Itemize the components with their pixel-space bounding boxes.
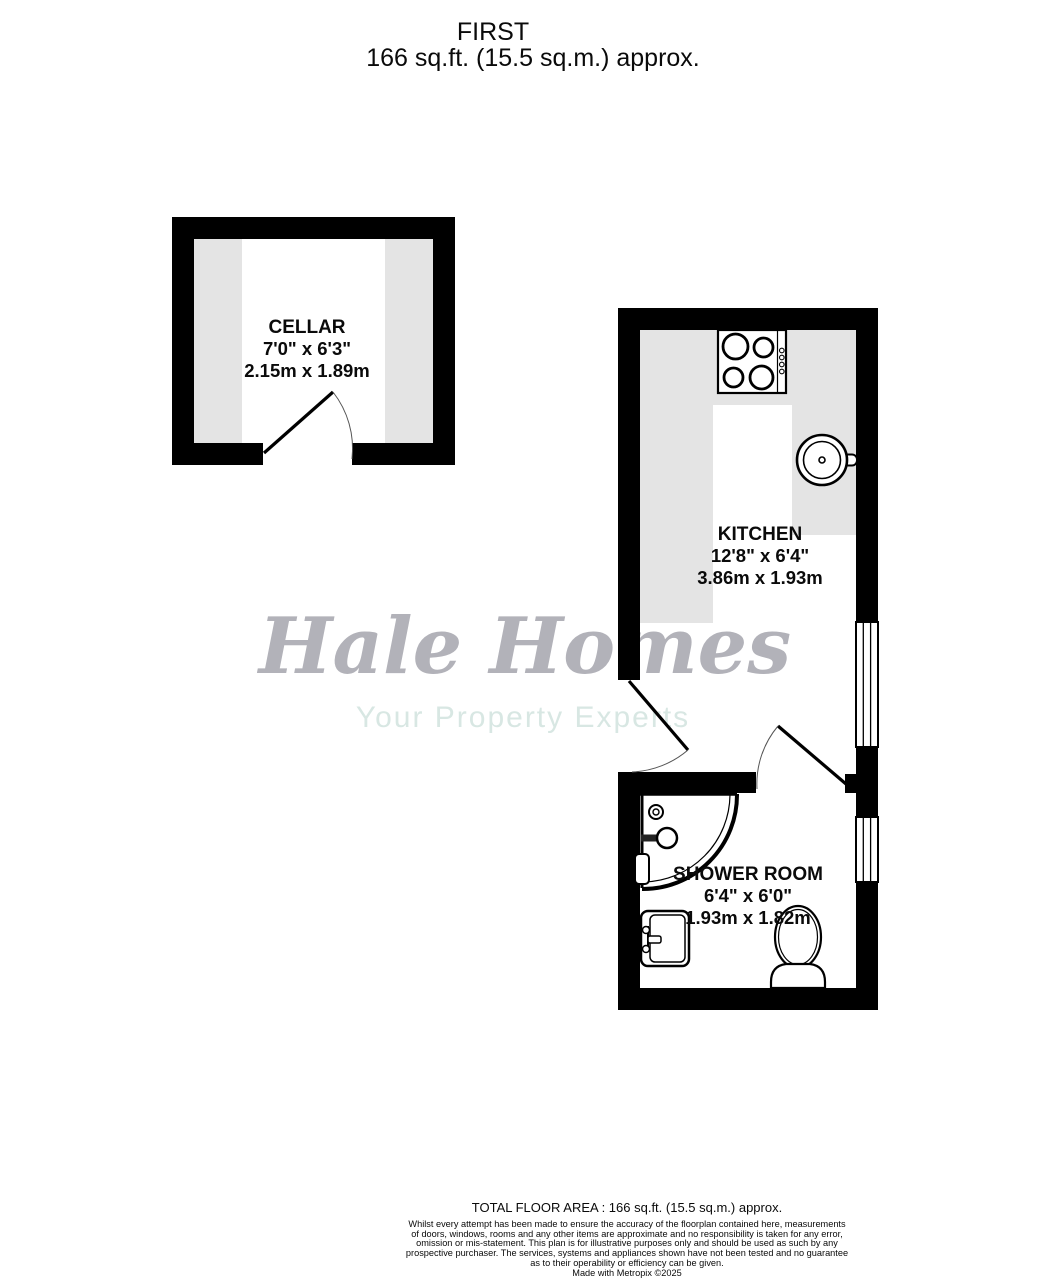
hob-knob — [780, 362, 785, 367]
cellar-reduced-headroom-right — [385, 239, 433, 443]
cellar-label: CELLAR — [268, 317, 345, 338]
cellar-reduced-headroom-left — [194, 239, 242, 443]
shower-wall-left — [618, 793, 640, 988]
shower-wall-bottom — [618, 988, 878, 1010]
kitchen-imperial-dims: 12'8" x 6'4" — [711, 545, 809, 566]
metropix-credit: Made with Metropix ©2025 — [406, 1269, 848, 1279]
kitchen-wall-top — [618, 308, 878, 330]
hob-burner — [724, 368, 743, 387]
cellar-wall-bottom-left — [172, 443, 263, 465]
hob-burner — [750, 366, 773, 389]
hob-knob — [780, 348, 785, 353]
hob-burner — [723, 334, 748, 359]
radiator-icon — [635, 854, 649, 884]
shower-wall-right — [856, 882, 878, 988]
watermark-tagline-text: Your Property Experts — [356, 701, 690, 734]
watermark-brand-text: Hale Homes — [257, 601, 791, 692]
shower-room-imperial-dims: 6'4" x 6'0" — [704, 885, 792, 906]
cellar-wall-bottom-right — [352, 443, 455, 465]
hob-burner — [754, 338, 773, 357]
kitchen-window-frame — [856, 622, 878, 747]
cellar-wall-top — [172, 217, 455, 239]
shower-window-frame — [856, 817, 878, 882]
hob-knob — [780, 355, 785, 360]
hob-knob — [780, 369, 785, 374]
shower-room-metric-dims: 1.93m x 1.82m — [685, 907, 810, 928]
disclaimer: Whilst every attempt has been made to en… — [406, 1220, 848, 1278]
total-floor-area: TOTAL FLOOR AREA : 166 sq.ft. (15.5 sq.m… — [472, 1200, 782, 1215]
kitchen-sink-drain — [819, 457, 825, 463]
bathroom-sink-tap-handle — [643, 946, 650, 953]
shower-head-center — [653, 809, 659, 815]
hob-icon — [718, 330, 786, 393]
cellar-imperial-dims: 7'0" x 6'3" — [263, 338, 351, 359]
kitchen-wall-left-upper — [618, 330, 640, 680]
shower-window — [856, 817, 878, 882]
floorplan-canvas: Hale Homes Your Property Experts — [0, 0, 1044, 1280]
bathroom-sink-spout — [648, 936, 661, 943]
kitchen-window — [856, 622, 878, 747]
cellar-wall-left — [172, 239, 194, 443]
bathroom-sink-icon — [641, 911, 689, 966]
kitchen-shower-divider-wall — [618, 772, 756, 793]
shower-door-hinge-post — [845, 774, 857, 793]
shower-control-knob — [657, 828, 677, 848]
cellar-metric-dims: 2.15m x 1.89m — [244, 360, 369, 381]
kitchen-counter-right — [792, 330, 856, 535]
cellar-wall-right — [433, 239, 455, 443]
bathroom-sink-tap-handle — [643, 927, 650, 934]
kitchen-label: KITCHEN — [718, 524, 802, 545]
shower-room-label: SHOWER ROOM — [673, 864, 823, 885]
kitchen-wall-right-upper — [856, 330, 878, 622]
kitchen-metric-dims: 3.86m x 1.93m — [697, 567, 822, 588]
toilet-cistern — [771, 964, 825, 988]
kitchen-wall-right-lower — [856, 747, 878, 817]
